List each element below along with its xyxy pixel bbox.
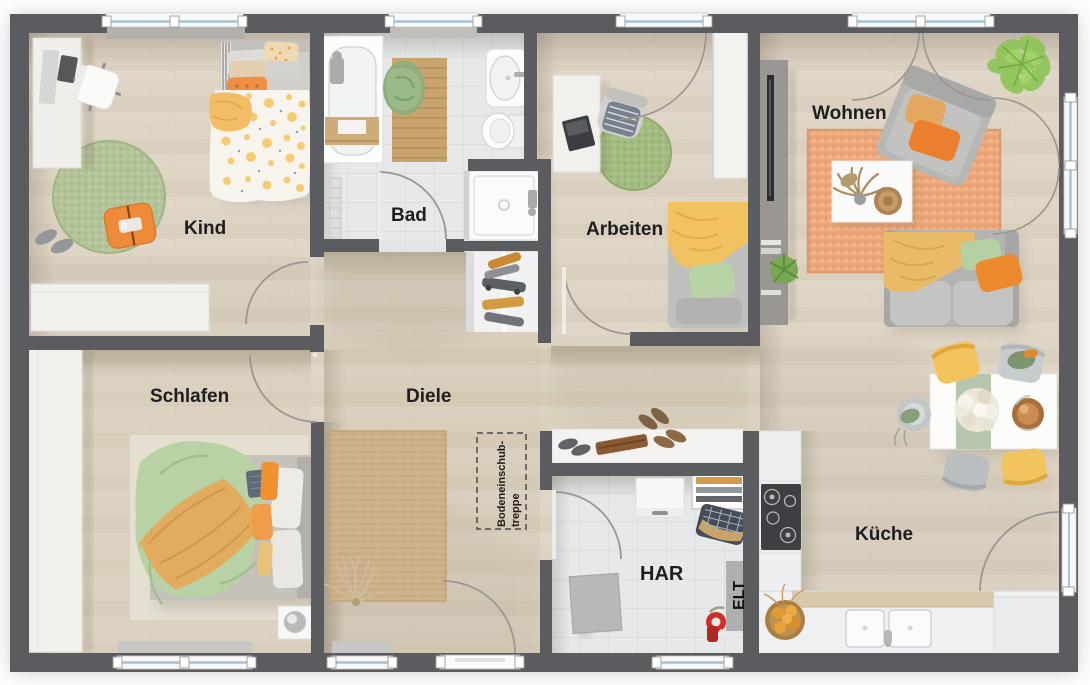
svg-text:Diele: Diele <box>406 386 451 407</box>
svg-text:Bodeneinschub-: Bodeneinschub- <box>496 440 508 527</box>
svg-text:Wohnen: Wohnen <box>812 103 887 124</box>
svg-text:HAR: HAR <box>640 563 684 585</box>
svg-text:ELT: ELT <box>731 581 748 610</box>
svg-text:treppe: treppe <box>510 493 522 527</box>
svg-text:Arbeiten: Arbeiten <box>586 219 663 240</box>
svg-text:Küche: Küche <box>855 524 913 545</box>
svg-text:Schlafen: Schlafen <box>150 386 229 407</box>
svg-text:Kind: Kind <box>184 218 226 239</box>
svg-text:Bad: Bad <box>391 205 427 226</box>
